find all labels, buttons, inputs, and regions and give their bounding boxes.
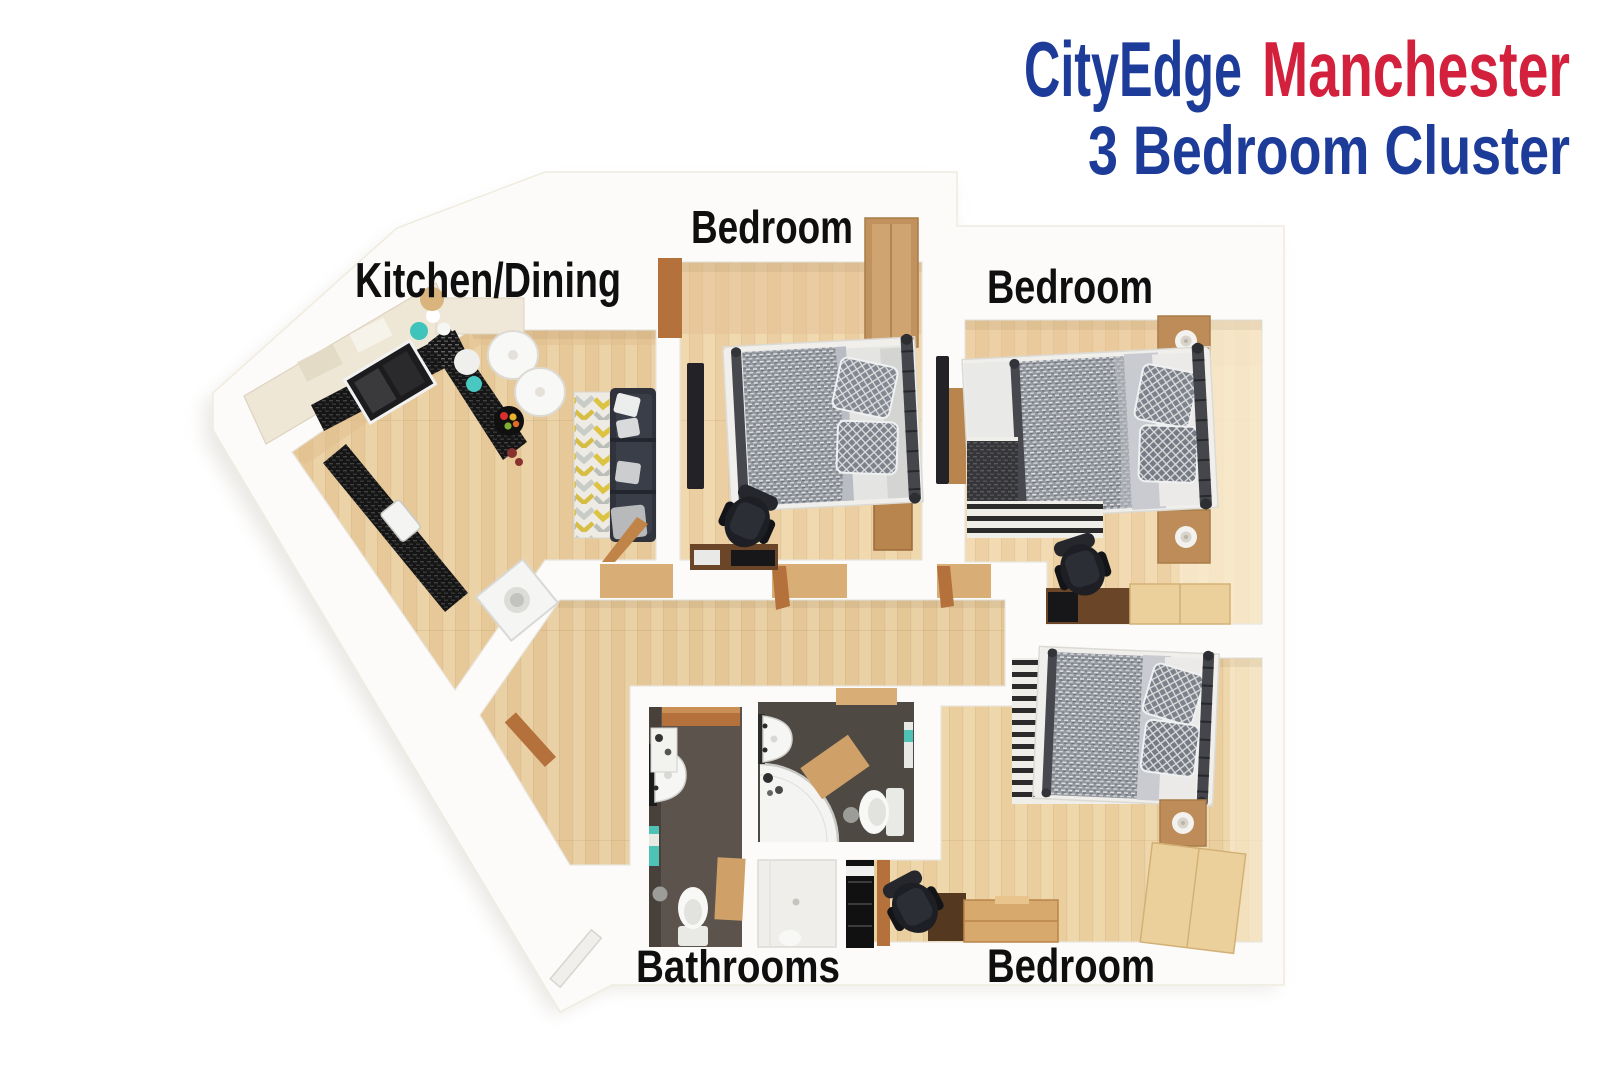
svg-text:3 Bedroom Cluster: 3 Bedroom Cluster [1088, 112, 1570, 189]
svg-text:CityEdge: CityEdge [1024, 25, 1242, 113]
svg-text:Bedroom: Bedroom [987, 939, 1155, 992]
svg-text:Bathrooms: Bathrooms [636, 941, 840, 992]
svg-text:Bedroom: Bedroom [987, 260, 1153, 313]
svg-text:Kitchen/Dining: Kitchen/Dining [355, 254, 621, 308]
svg-text:Manchester: Manchester [1262, 25, 1570, 113]
svg-text:Bedroom: Bedroom [691, 201, 853, 253]
